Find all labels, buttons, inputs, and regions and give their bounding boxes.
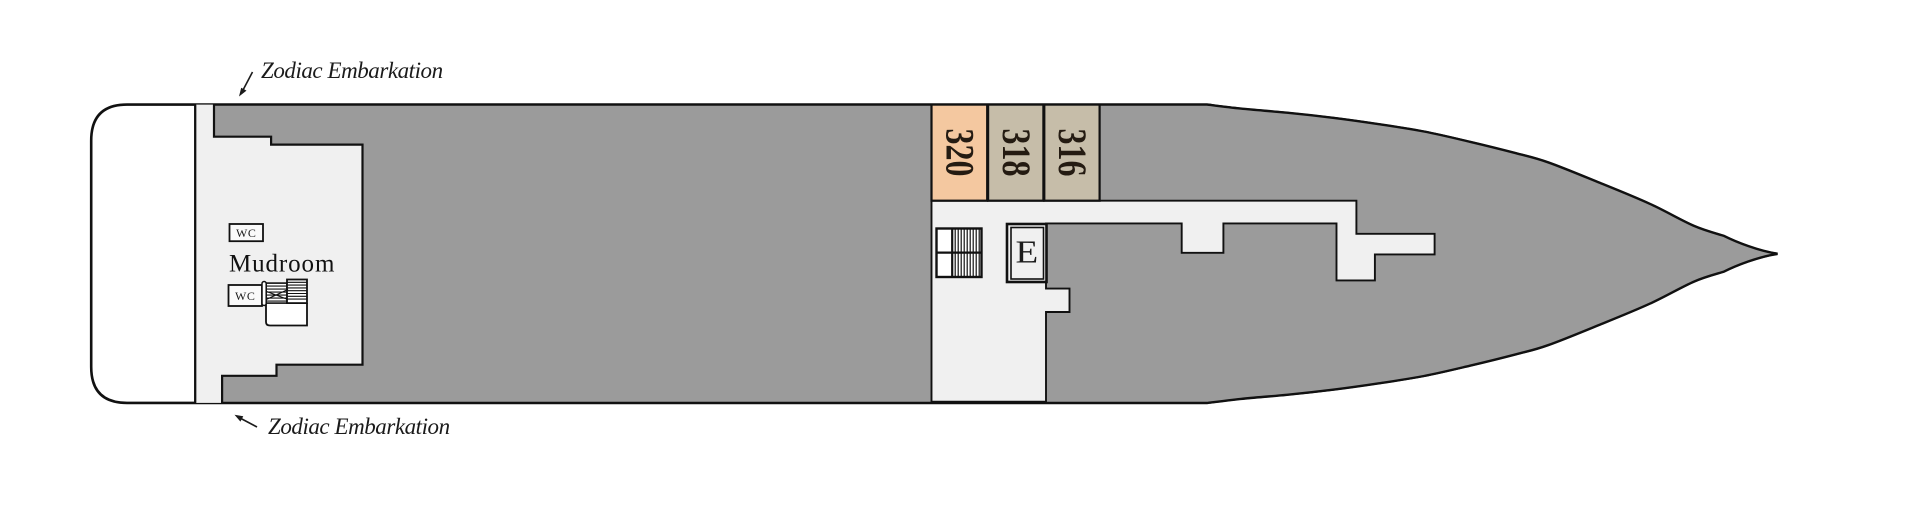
svg-text:318: 318	[994, 129, 1038, 177]
svg-text:WC: WC	[235, 289, 255, 303]
svg-text:320: 320	[938, 129, 982, 177]
svg-text:Mudroom: Mudroom	[229, 251, 335, 278]
svg-text:Zodiac Embarkation: Zodiac Embarkation	[268, 414, 450, 439]
svg-text:E: E	[1015, 235, 1038, 270]
svg-text:WC: WC	[236, 226, 256, 240]
svg-text:Zodiac Embarkation: Zodiac Embarkation	[261, 58, 443, 83]
svg-text:316: 316	[1050, 129, 1094, 177]
